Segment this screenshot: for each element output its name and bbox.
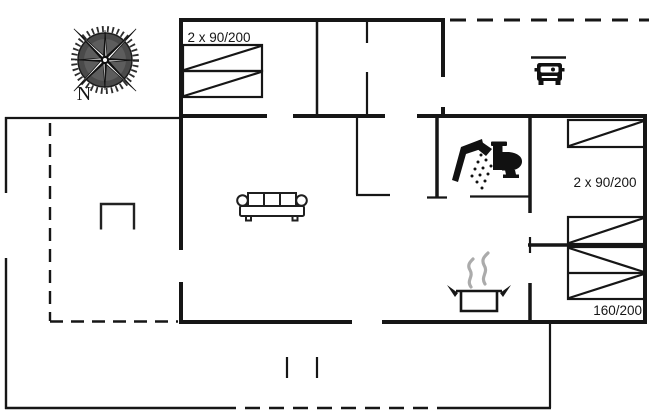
cooking-pot-icon (447, 253, 511, 311)
door-step-marks (287, 357, 317, 378)
interior-walls (317, 20, 645, 322)
shower-icon (452, 139, 493, 190)
floor-plan: N 2 x 90/200 2 x 90/200 160/200 (0, 0, 650, 420)
steam-icon (469, 253, 488, 287)
north-label: N (77, 83, 91, 105)
car-icon (531, 58, 566, 86)
bed-size-label: 160/200 (593, 303, 642, 318)
bed-size-label: 2 x 90/200 (187, 30, 250, 45)
toilet-icon (491, 142, 522, 179)
bed-right-lower-double (568, 247, 645, 299)
bed-top-left (183, 45, 262, 97)
sofa-icon (237, 193, 307, 221)
bed-size-label: 2 x 90/200 (573, 175, 636, 190)
house-outer-walls (179, 18, 647, 324)
shower-spray-dots (471, 154, 493, 190)
table-icon (100, 204, 135, 230)
